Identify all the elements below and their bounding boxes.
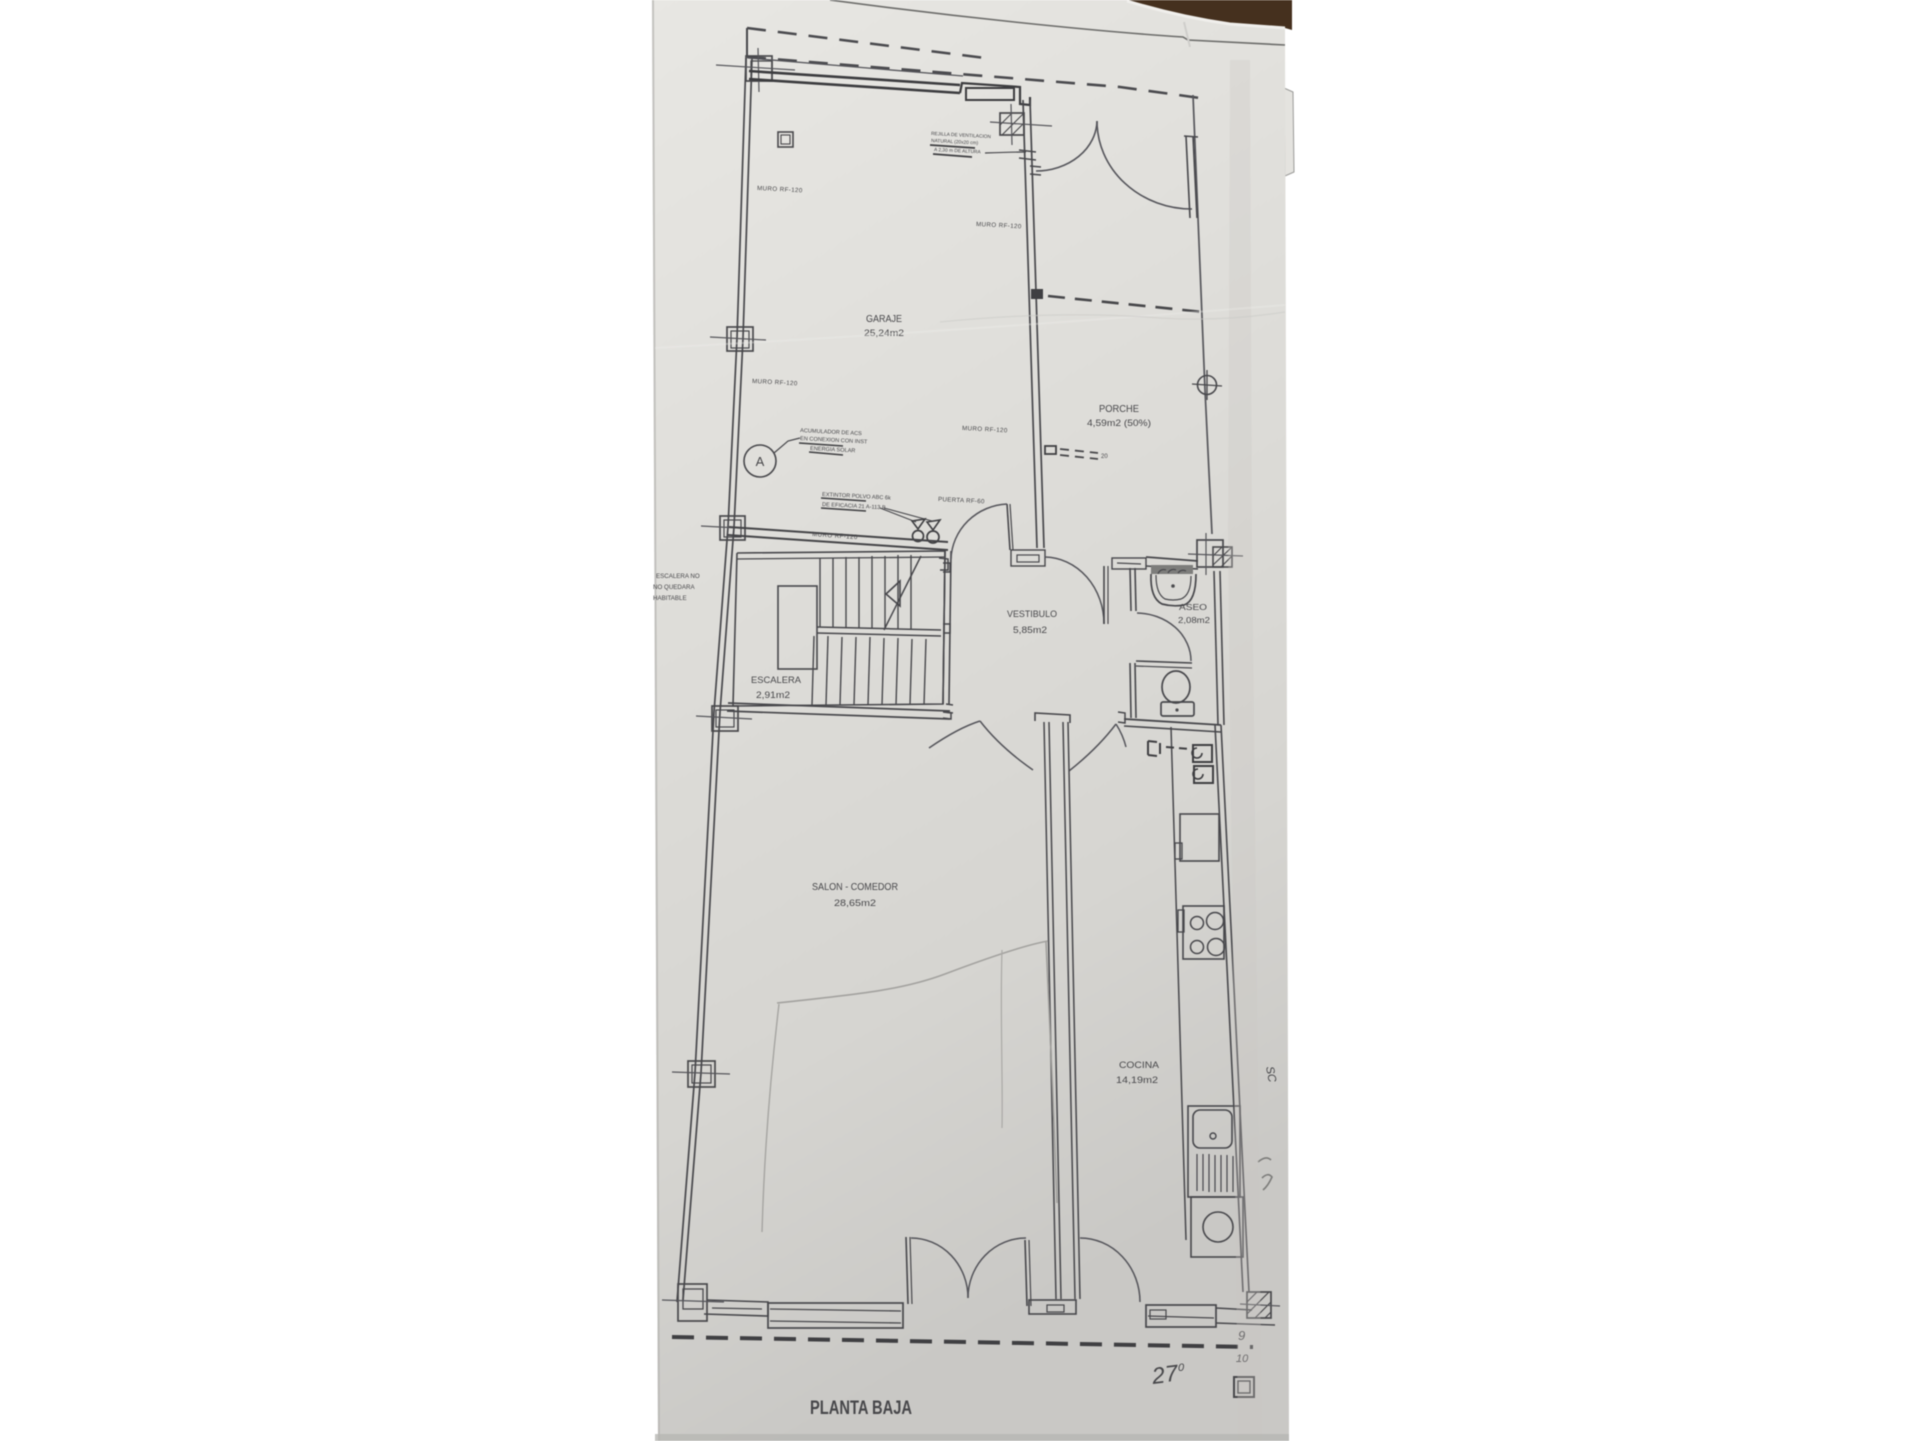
svg-text:HABITABLE: HABITABLE	[653, 595, 687, 602]
svg-text:5,85m2: 5,85m2	[1013, 625, 1047, 635]
svg-text:ESCALERA NO: ESCALERA NO	[656, 573, 700, 580]
svg-text:COCINA: COCINA	[1119, 1060, 1160, 1071]
svg-text:4,59m2 (50%): 4,59m2 (50%)	[1087, 418, 1151, 429]
svg-text:PORCHE: PORCHE	[1099, 404, 1139, 415]
svg-text:NO QUEDARA: NO QUEDARA	[653, 584, 695, 591]
svg-text:2,91m2: 2,91m2	[756, 690, 790, 700]
svg-text:GARAJE: GARAJE	[866, 314, 902, 325]
svg-text:A: A	[756, 454, 765, 469]
svg-text:ASEO: ASEO	[1179, 602, 1207, 612]
svg-text:14,19m2: 14,19m2	[1116, 1075, 1158, 1086]
svg-text:28,65m2: 28,65m2	[834, 898, 876, 909]
svg-text:VESTIBULO: VESTIBULO	[1007, 609, 1057, 619]
svg-text:2,08m2: 2,08m2	[1178, 615, 1210, 625]
svg-text:20: 20	[1101, 454, 1108, 460]
svg-text:PLANTA BAJA: PLANTA BAJA	[810, 1398, 912, 1419]
svg-text:ESCALERA: ESCALERA	[751, 675, 801, 685]
svg-text:0: 0	[1178, 1362, 1185, 1374]
svg-text:SALON - COMEDOR: SALON - COMEDOR	[812, 882, 898, 893]
